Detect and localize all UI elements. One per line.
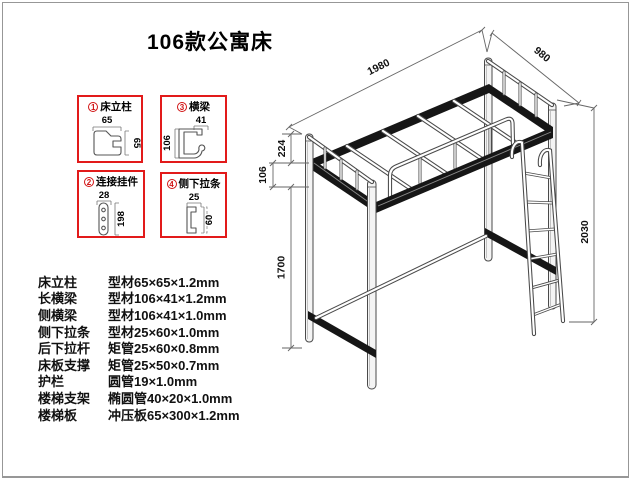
detail-box-side-tie: 4 侧下拉条 25 60 xyxy=(160,172,227,238)
detail-box-label: 横梁 xyxy=(189,99,210,114)
detail-box-connector: 2 连接挂件 28 198 xyxy=(77,170,145,238)
profile-beam: 41 106 xyxy=(163,113,225,161)
spec-row: 侧横梁 型材106×41×1.0mm xyxy=(38,306,240,323)
detail-box-title: 4 侧下拉条 xyxy=(162,177,225,190)
spec-value: 冲压板65×300×1.2mm xyxy=(108,405,240,424)
spec-row: 楼梯板 冲压板65×300×1.2mm xyxy=(38,406,240,423)
profile-bed-post: 65 65 xyxy=(79,113,141,161)
detail-box-beam: 3 横梁 41 106 xyxy=(160,95,227,163)
blueprint-page: 106款公寓床 xyxy=(0,0,631,480)
deck-left-rail xyxy=(312,159,376,213)
profile-dim-side: 106 xyxy=(163,135,173,151)
profile-dim-side: 198 xyxy=(116,211,127,227)
profile-dim-top: 25 xyxy=(188,192,199,203)
dim-beam-label: 106 xyxy=(257,166,269,184)
detail-box-label: 连接挂件 xyxy=(96,174,138,189)
profile-dim-top: 41 xyxy=(195,115,206,126)
profile-side-tie: 25 60 xyxy=(163,190,225,236)
detail-box-title: 3 横梁 xyxy=(162,100,225,113)
circled-number-icon: 1 xyxy=(88,102,98,112)
spec-row: 后下拉杆 矩管25×60×0.8mm xyxy=(38,339,240,356)
circled-number-icon: 4 xyxy=(167,179,177,189)
bed-post-back-left xyxy=(306,134,314,342)
profile-dim-side: 60 xyxy=(204,215,215,226)
spec-row: 侧下拉条 型材25×60×1.0mm xyxy=(38,323,240,340)
left-rail-highlight xyxy=(314,163,374,206)
dimension-height: 2030 xyxy=(557,100,597,325)
detail-box-bed-post: 1 床立柱 65 65 xyxy=(77,95,143,163)
dim-depth-label: 980 xyxy=(531,44,552,64)
circled-number-icon: 3 xyxy=(177,102,187,112)
dimension-length: 1980 xyxy=(286,27,492,134)
dimension-left-stack: 224 106 1700 xyxy=(257,131,309,351)
detail-box-title: 1 床立柱 xyxy=(79,100,141,113)
circled-number-icon: 2 xyxy=(84,177,94,187)
spec-row: 床立柱 型材65×65×1.2mm xyxy=(38,273,240,290)
deck-far-rail xyxy=(312,84,489,168)
dim-clearance-label: 1700 xyxy=(276,256,288,280)
bed-post-front-left xyxy=(368,180,377,389)
spec-label: 楼梯板 xyxy=(38,405,108,424)
dim-height-label: 2030 xyxy=(579,220,591,244)
spec-row: 楼梯支架 椭圆管40×20×1.0mm xyxy=(38,389,240,406)
profile-connector: 28 198 xyxy=(80,188,142,236)
detail-box-label: 侧下拉条 xyxy=(179,176,221,191)
lower-brace-right xyxy=(485,228,556,275)
spec-list: 床立柱 型材65×65×1.2mm 长横梁 型材106×41×1.2mm 侧横梁… xyxy=(38,273,240,422)
profile-dim-top: 65 xyxy=(102,115,113,126)
detail-box-label: 床立柱 xyxy=(100,99,132,114)
spec-row: 长横梁 型材106×41×1.2mm xyxy=(38,290,240,307)
spec-row: 护栏 圆管19×1.0mm xyxy=(38,373,240,390)
dim-guard-label: 224 xyxy=(276,140,288,158)
spec-row: 床板支撑 矩管25×50×0.7mm xyxy=(38,356,240,373)
profile-dim-side: 65 xyxy=(131,138,141,149)
detail-box-title: 2 连接挂件 xyxy=(79,175,143,188)
dim-length-label: 1980 xyxy=(366,57,392,78)
profile-dim-top: 28 xyxy=(99,190,110,201)
rear-lower-bar xyxy=(316,236,486,318)
